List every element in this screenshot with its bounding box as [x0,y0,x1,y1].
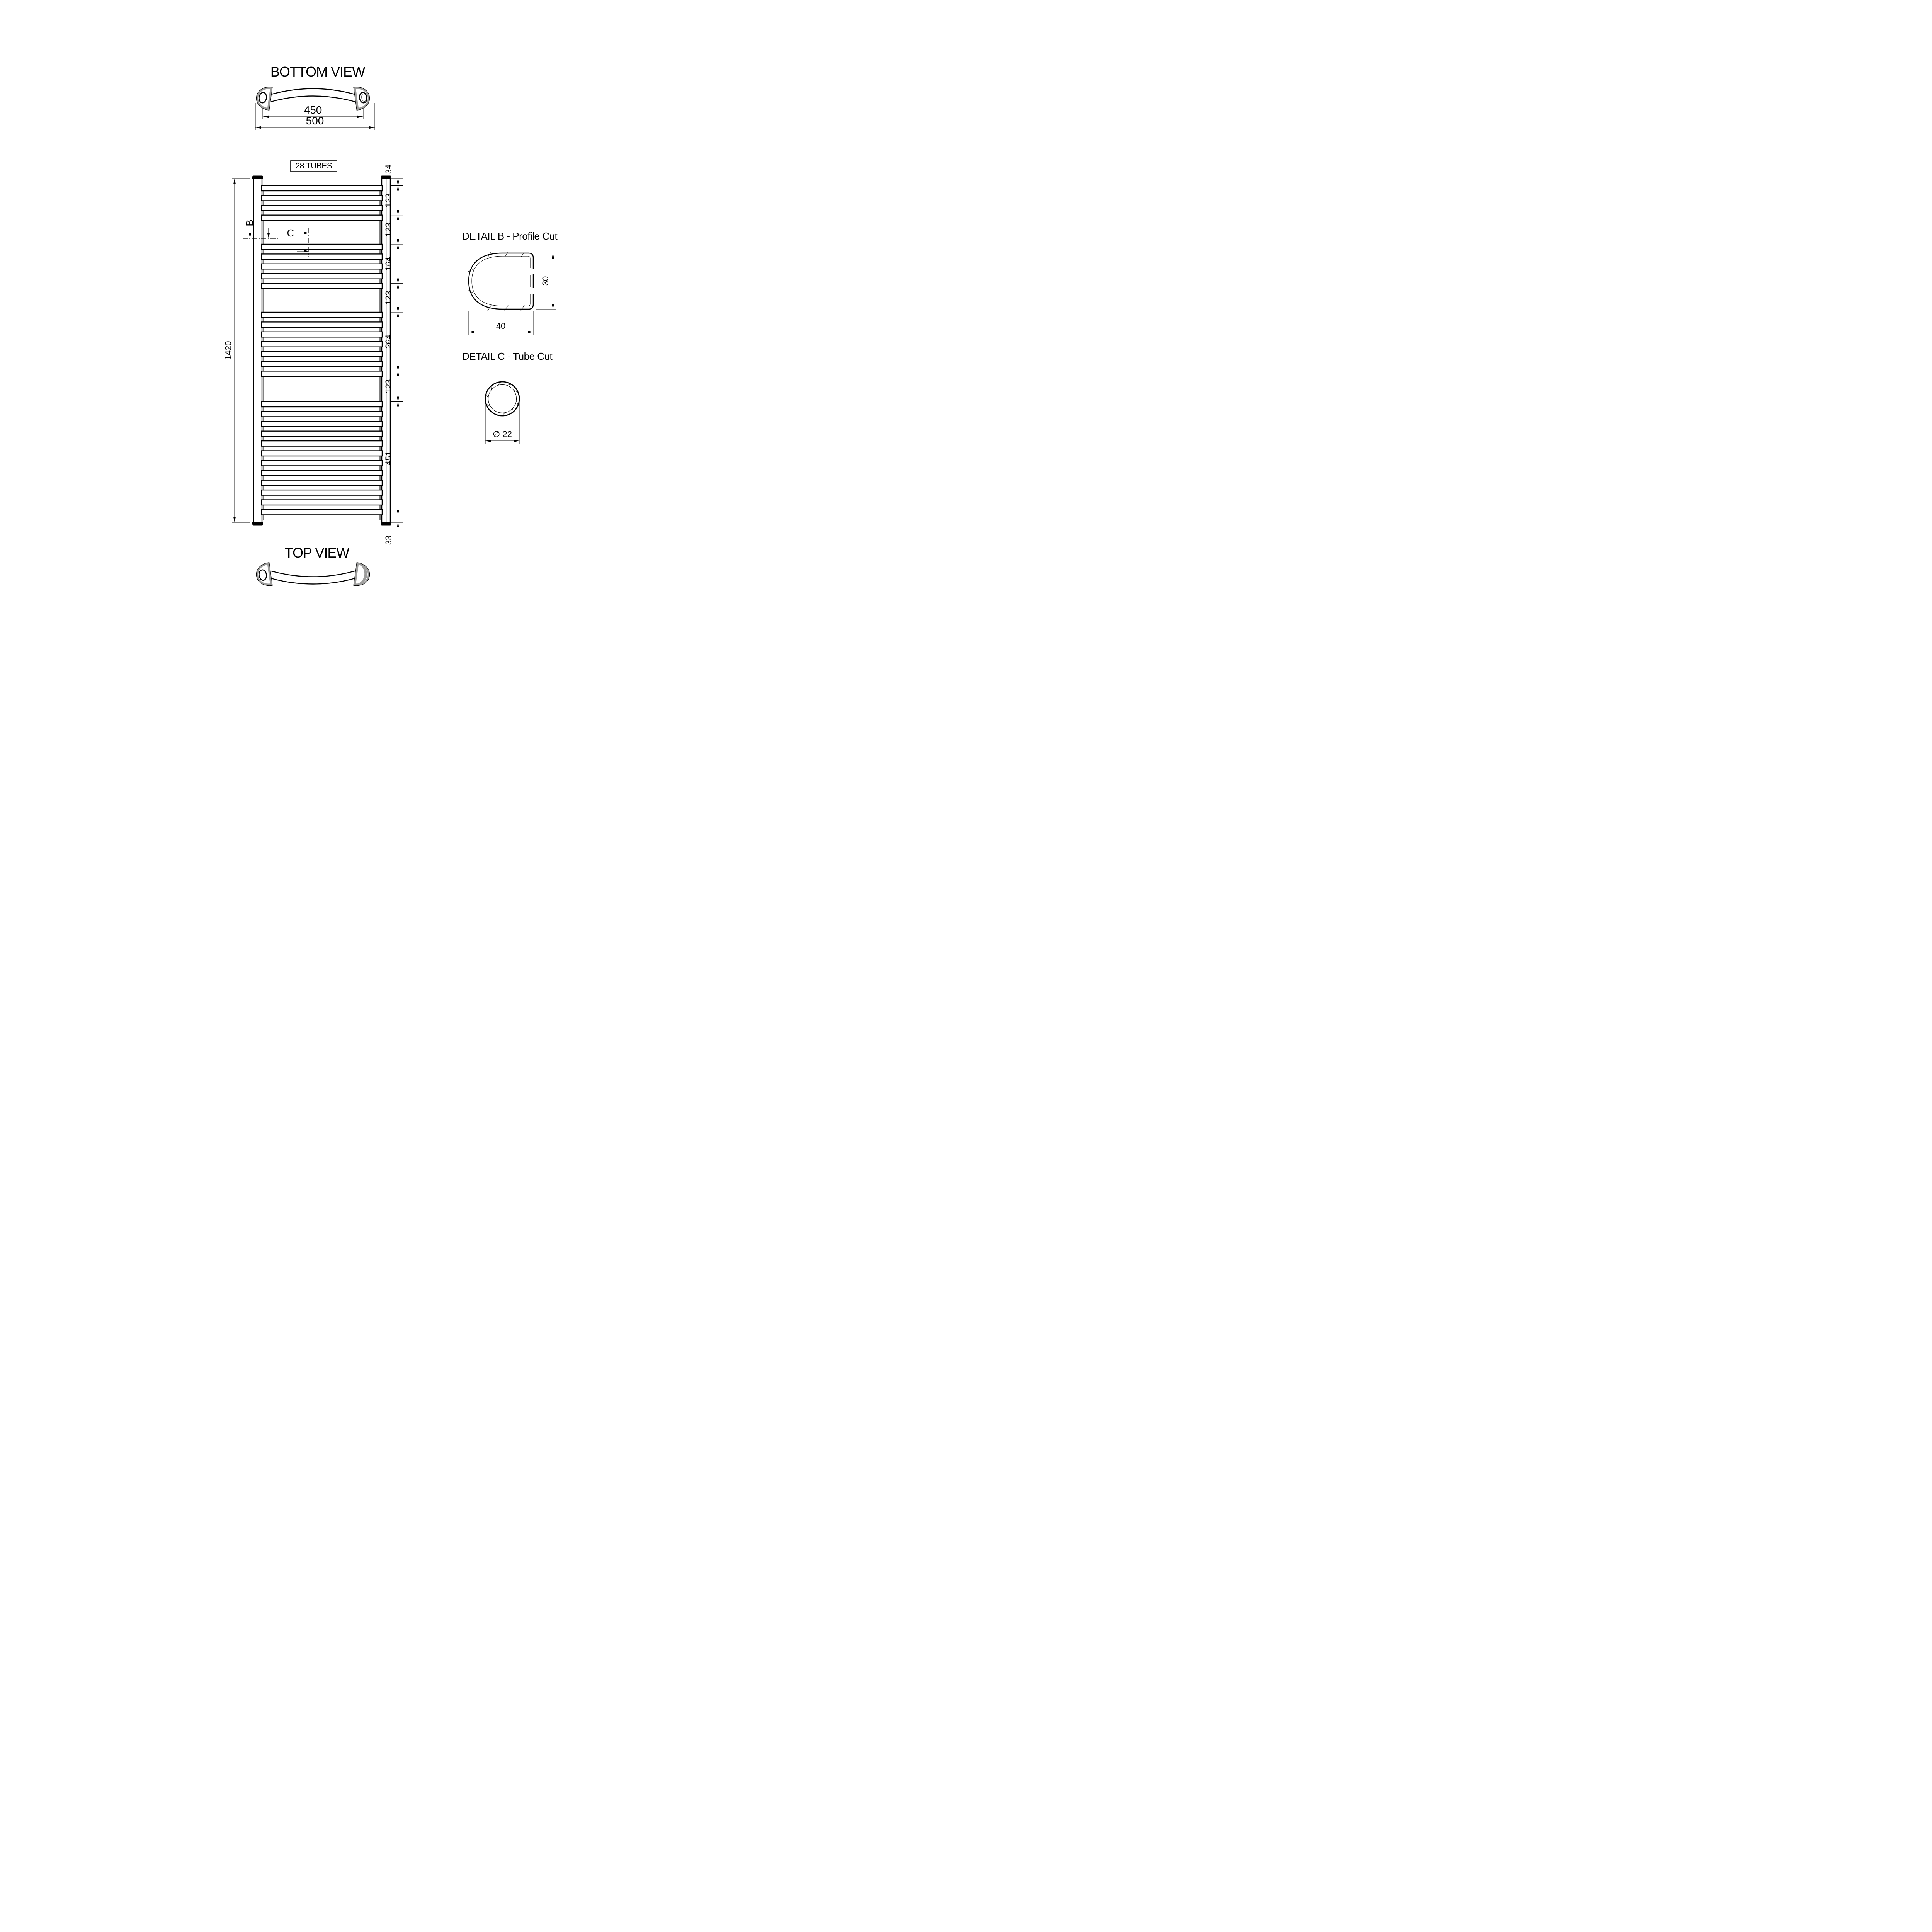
dim-30-label: 30 [541,276,550,286]
tube [262,480,382,486]
dim-123b-label: 123 [384,223,393,237]
tube [262,431,382,437]
dim-33-label: 33 [384,536,393,545]
dim-123a-label: 123 [384,193,393,207]
tube [262,254,382,259]
tube [262,500,382,505]
top-view-left-cap [255,563,272,588]
left-rail [253,179,262,522]
tube [262,186,382,191]
dim-34-label: 34 [384,165,393,174]
detail-b-dim-30: 30 [536,253,556,309]
tube [262,402,382,407]
cap-gray-body [256,564,271,586]
tube [262,361,382,367]
tube [262,441,382,446]
tube [262,371,382,376]
dim-500-label: 500 [306,115,324,127]
profile-outer-wall [469,253,533,309]
tube [262,412,382,417]
marker-b-letter: B [244,219,255,226]
tube [262,470,382,476]
right-rail-bottom-cap [381,522,391,526]
left-rail-bottom-cap [252,522,263,526]
dim-diameter-label: ∅ 22 [493,429,512,439]
drawing-sheet: BOTTOM VIEW 450 [0,0,604,604]
tube [262,196,382,201]
dim-451-label: 451 [384,451,393,466]
top-view: TOP VIEW [255,545,371,587]
bottom-view-tube-bottom-edge [271,96,355,102]
detail-c-marker: C [287,227,309,257]
detail-b-view: DETAIL B - Profile Cut 30 [462,230,558,335]
dim-450-label: 450 [304,104,322,116]
tube [262,205,382,211]
dim-40-label: 40 [496,321,505,331]
dim-123d-label: 123 [384,379,393,394]
tube [262,312,382,318]
tube [262,244,382,250]
tube [262,264,382,269]
tubes-count-box: 28 TUBES [291,161,337,172]
tube [262,342,382,347]
detail-b-dim-40: 40 [469,311,533,335]
top-view-right-cap [354,563,371,588]
cap-gray-body [355,87,370,109]
tube [262,451,382,456]
tube [262,510,382,515]
detail-c-view: DETAIL C - Tube Cut ∅ 22 [462,350,553,444]
tube [262,490,382,495]
tube-array [262,186,382,515]
top-view-tube-top-edge [271,571,355,577]
dim-height-1420: 1420 [223,179,250,522]
tubes-count-label: 28 TUBES [296,162,332,170]
top-view-title: TOP VIEW [285,545,350,561]
dim-123c-label: 123 [384,291,393,305]
cap-gray-body [256,87,271,109]
tube [262,332,382,337]
bottom-view-left-cap [255,85,272,111]
right-rail-top-cap [381,176,391,179]
front-view: 28 TUBES B C [223,161,403,545]
tube [262,284,382,289]
bottom-view: BOTTOM VIEW 450 [255,64,375,130]
profile-inner-wall [472,256,530,306]
technical-drawing-canvas: BOTTOM VIEW 450 [0,0,604,604]
marker-c-letter: C [287,227,294,239]
dim-164-label: 164 [384,257,393,271]
tube [262,461,382,466]
bottom-view-right-cap [354,85,371,111]
detail-c-title: DETAIL C - Tube Cut [462,350,553,362]
tube [262,352,382,357]
dim-1420-label: 1420 [223,341,233,360]
tube-outer-wall [485,382,519,416]
left-rail-top-cap [252,176,263,179]
tube [262,322,382,327]
tube [262,215,382,221]
dim-264-label: 264 [384,335,393,349]
bottom-view-tube-top-edge [271,89,355,95]
tube [262,274,382,279]
detail-b-title: DETAIL B - Profile Cut [462,230,558,242]
tube [262,421,382,427]
top-view-tube-bottom-edge [271,578,355,584]
bottom-view-title: BOTTOM VIEW [270,64,365,80]
